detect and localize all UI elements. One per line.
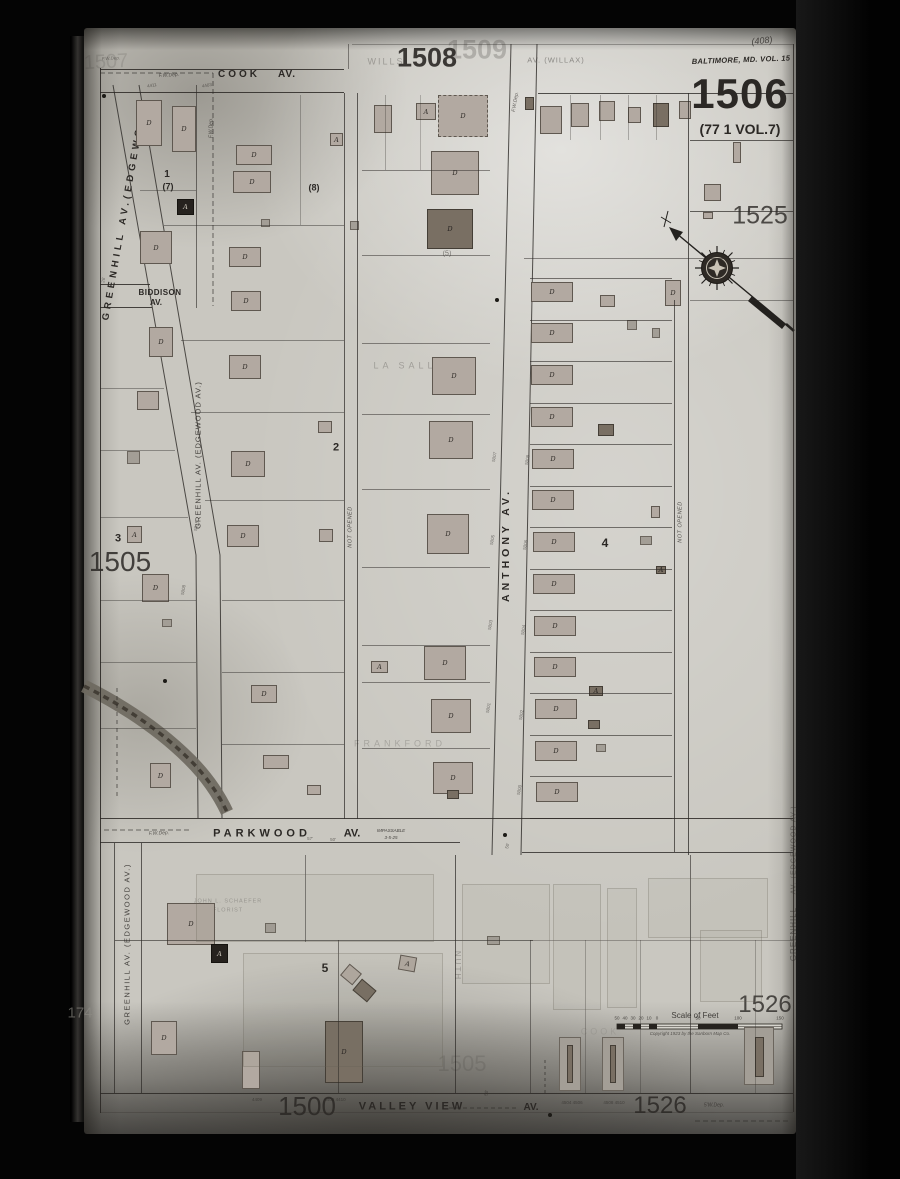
ghost-text: COOK	[581, 1028, 620, 1037]
building-structure	[628, 107, 641, 123]
building-a: A	[371, 661, 388, 673]
street-anthony-av: ANTHONY AV.	[501, 488, 512, 602]
building-d: D	[533, 532, 575, 552]
map-line	[196, 85, 197, 308]
adjacent-sheet-1505: 1505	[89, 548, 151, 576]
map-line	[100, 92, 344, 93]
building-a: A	[656, 566, 666, 574]
block-number-8: (8)	[309, 184, 320, 193]
map-line	[205, 500, 344, 501]
adjacent-sheet-1509: 1509	[447, 37, 507, 64]
survey-note: F.W.Dep.	[512, 92, 520, 113]
scan-background: (408)BALTIMORE, MD. VOL. 151506(77 1 VOL…	[0, 0, 900, 1179]
building-structure	[127, 451, 140, 464]
building-d: D	[229, 247, 261, 267]
house-number: 5001	[486, 703, 492, 714]
map-line	[690, 211, 793, 212]
scale-title: Scale of Feet	[671, 1012, 718, 1020]
scale-tick: 100	[734, 1016, 742, 1021]
block-number-5-paren: (5)	[443, 251, 452, 258]
building-a: A	[330, 133, 343, 146]
building-structure	[755, 1037, 764, 1077]
survey-dot	[495, 298, 499, 302]
house-number: 4411	[147, 83, 157, 89]
building-structure	[318, 421, 332, 433]
survey-note: 5'W.Dep.	[704, 1104, 724, 1109]
ghost-outline	[553, 884, 601, 1010]
building-structure	[447, 790, 459, 799]
street-parkwood-av-suffix: AV.	[344, 829, 361, 840]
scale-tick: 150	[776, 1016, 784, 1021]
building-d: D	[231, 451, 265, 477]
map-line	[100, 818, 793, 819]
building-structure	[704, 184, 721, 201]
scale-tick: 40	[622, 1016, 627, 1021]
map-line	[385, 95, 386, 170]
map-line	[656, 95, 657, 140]
building-d: D	[531, 365, 573, 385]
map-line	[362, 748, 490, 749]
building-structure	[703, 212, 713, 219]
map-line	[530, 403, 672, 404]
house-number: 5000	[517, 785, 523, 796]
survey-note: F.W.Dep.	[159, 73, 180, 79]
building-d: D	[531, 323, 573, 343]
map-line	[530, 444, 672, 445]
map-line	[100, 68, 101, 1113]
building-d: D	[227, 525, 259, 547]
ghost-outline	[196, 874, 434, 942]
street-greenhill-av-mid: GREENHILL AV. (EDGEWOOD AV.)	[194, 381, 202, 529]
map-content-layer: (408)BALTIMORE, MD. VOL. 151506(77 1 VOL…	[0, 0, 900, 1179]
survey-note: F.W.Dep.	[149, 831, 169, 837]
map-line	[362, 170, 490, 171]
map-line	[344, 93, 345, 819]
map-line	[793, 44, 794, 1112]
survey-dot	[102, 94, 106, 98]
building-a: A	[589, 686, 603, 696]
building-d: D	[531, 407, 573, 427]
house-number: 4409	[252, 1098, 262, 1103]
house-number: 5008	[525, 455, 531, 466]
building-structure	[525, 97, 534, 110]
map-line	[164, 225, 344, 226]
building-d: D	[136, 100, 162, 146]
building-d: D	[424, 646, 466, 680]
building-structure	[640, 536, 652, 545]
building-d: D	[665, 280, 681, 306]
building-structure	[374, 105, 392, 133]
map-line	[141, 843, 142, 1093]
building-d: D	[531, 282, 573, 302]
map-line	[530, 776, 672, 777]
house-number: 5015	[194, 521, 200, 532]
building-d: D	[432, 357, 476, 395]
map-line	[100, 728, 196, 729]
building-d: D	[535, 699, 577, 719]
building-d: D	[427, 514, 469, 554]
map-line	[688, 93, 689, 855]
survey-dot	[548, 1113, 552, 1117]
house-number: 5005	[490, 535, 496, 546]
building-structure	[307, 785, 321, 795]
building-structure	[600, 295, 615, 307]
map-line	[362, 567, 490, 568]
scale-tick: 20	[638, 1016, 643, 1021]
building-d: D	[534, 657, 576, 677]
copyright-line: Copyright 1923 by the Sanborn Map Co.	[650, 1032, 731, 1037]
building-structure	[588, 720, 600, 729]
edge-street-greenhill: GREENHILL	[790, 907, 798, 961]
house-number: 5007	[492, 452, 498, 463]
building-a: A	[127, 526, 142, 543]
street-valley-view-av: VALLEY VIEW	[359, 1102, 466, 1113]
scale-tick: 10	[646, 1016, 651, 1021]
building-a: A	[177, 199, 194, 215]
survey-dot	[503, 833, 507, 837]
building-a: A	[416, 103, 436, 120]
block-number-3: 3	[115, 534, 121, 545]
house-number: 5002	[519, 710, 525, 721]
ghost-outline	[607, 888, 637, 1008]
building-d: D	[140, 231, 172, 264]
annotation-impassable: IMPASSABLE	[377, 829, 405, 834]
building-d: D	[233, 171, 271, 193]
scale-tick: 50	[614, 1016, 619, 1021]
building-d: D	[431, 151, 479, 195]
building-d: D	[151, 1021, 177, 1055]
volume-line: BALTIMORE, MD. VOL. 15	[692, 55, 791, 66]
map-line	[530, 569, 672, 570]
map-line	[362, 414, 490, 415]
building-structure	[596, 744, 606, 752]
building-a: A	[211, 944, 228, 963]
building-d: D	[533, 574, 575, 594]
map-line	[140, 190, 196, 191]
map-line	[100, 450, 175, 451]
map-line	[455, 855, 456, 1093]
width-mark: 50'	[505, 843, 511, 850]
map-line	[191, 412, 344, 413]
scale-tick: 0	[656, 1016, 659, 1021]
map-line	[100, 662, 196, 663]
ghost-outline	[243, 953, 443, 1067]
building-d: D	[427, 209, 473, 249]
map-line	[362, 682, 490, 683]
street-wills-ghost: WILLS	[367, 58, 404, 67]
building-d: D	[149, 327, 173, 357]
building-structure	[162, 619, 172, 627]
map-line	[530, 693, 672, 694]
annotation-not-opened-east: NOT OPENED	[678, 501, 684, 542]
building-d: D	[438, 95, 488, 137]
block-number-4: 4	[602, 537, 609, 549]
building-structure	[540, 106, 562, 134]
building-structure	[651, 506, 660, 518]
street-cook-av: COOK	[218, 70, 260, 80]
survey-dot	[163, 679, 167, 683]
map-line	[674, 300, 675, 852]
house-number: 5003	[488, 620, 494, 631]
page-edge-number: 174	[67, 1006, 92, 1021]
map-line	[222, 600, 344, 601]
map-line	[530, 278, 672, 279]
adjacent-sheet-1525: 1525	[732, 204, 788, 229]
building-structure	[137, 391, 159, 410]
map-line	[352, 44, 793, 45]
building-d: D	[532, 490, 574, 510]
map-line	[114, 843, 115, 1093]
map-line	[300, 95, 301, 225]
building-structure	[567, 1045, 573, 1083]
width-mark: 57'	[307, 837, 313, 842]
adjacent-sheet-1526-bottom: 1526	[633, 1094, 686, 1118]
survey-note: F.W.Dep.	[210, 118, 215, 138]
building-d: D	[251, 685, 277, 703]
map-line	[362, 255, 490, 256]
building-d: D	[429, 421, 473, 459]
building-structure	[679, 101, 691, 119]
map-line	[100, 1112, 793, 1113]
map-line	[222, 744, 344, 745]
building-d: D	[536, 782, 578, 802]
ghost-outline	[700, 930, 762, 1002]
building-structure	[571, 103, 589, 127]
house-number: 5008	[181, 585, 187, 596]
map-line	[357, 93, 358, 819]
map-line	[530, 735, 672, 736]
map-line	[524, 258, 793, 259]
map-line	[100, 517, 188, 518]
map-line	[690, 300, 793, 301]
map-line	[530, 320, 672, 321]
map-line	[100, 600, 196, 601]
building-d: D	[535, 741, 577, 761]
street-greenhill-av-bottom: GREENHILL AV. (EDGEWOOD AV.)	[123, 863, 131, 1025]
map-line	[530, 610, 672, 611]
street-biddison-av: BIDDISON	[138, 289, 181, 297]
map-line	[100, 1093, 793, 1094]
map-line	[100, 69, 344, 70]
map-line	[362, 489, 490, 490]
map-line	[530, 486, 672, 487]
building-structure	[599, 101, 615, 121]
building-structure	[610, 1045, 616, 1083]
building-d: D	[150, 763, 171, 788]
map-line	[348, 44, 349, 69]
street-cook-av-suffix: AV.	[278, 70, 296, 80]
map-line	[530, 652, 672, 653]
map-line	[100, 388, 164, 389]
map-line	[690, 140, 793, 141]
house-number: 4408 4410	[324, 1098, 345, 1103]
annotation-impassable-date: 3-5-25	[384, 836, 397, 841]
street-biddison-av-suffix: AV.	[150, 299, 162, 307]
map-line	[100, 307, 152, 308]
block-number-1: 1	[164, 170, 170, 180]
building-structure	[733, 142, 741, 163]
house-number: 4504 4506	[561, 1101, 582, 1106]
survey-note: F.W.Dep.	[102, 56, 120, 61]
map-line	[181, 340, 344, 341]
building-structure	[263, 755, 289, 769]
ghost-sheet-1505: 1505	[438, 1053, 487, 1075]
ghost-outline	[648, 878, 768, 938]
map-line	[600, 95, 601, 140]
map-line	[530, 527, 672, 528]
map-line	[420, 95, 421, 170]
building-d: D	[431, 699, 471, 733]
house-number: 4508 4510	[603, 1101, 624, 1106]
sub-number: (77 1 VOL.7)	[700, 122, 781, 136]
map-line	[222, 672, 344, 673]
street-willax: AV. (WILLAX)	[527, 56, 584, 64]
building-structure	[319, 529, 333, 542]
building-d: D	[229, 355, 261, 379]
building-structure	[627, 320, 637, 330]
map-line	[100, 284, 150, 285]
map-line	[530, 361, 672, 362]
building-d: D	[142, 574, 169, 602]
building-structure	[598, 424, 614, 436]
map-line	[100, 842, 460, 843]
building-d: D	[236, 145, 272, 165]
house-number: 5006	[523, 540, 529, 551]
house-number: 4403	[202, 83, 213, 89]
scale-tick: 30	[630, 1016, 635, 1021]
block-number-2: 2	[333, 443, 339, 454]
map-line	[628, 95, 629, 140]
house-number: 5004	[521, 625, 527, 636]
building-d: D	[532, 449, 574, 469]
sheet-number: 1506	[691, 73, 788, 115]
ghost-outline	[462, 884, 550, 984]
map-line	[362, 343, 490, 344]
map-line	[538, 93, 793, 94]
map-line	[362, 645, 490, 646]
building-d: D	[534, 616, 576, 636]
building-d: D	[172, 106, 196, 152]
annotation-not-opened-west: NOT OPENED	[348, 506, 354, 547]
building-d: D	[231, 291, 261, 311]
map-line	[522, 852, 793, 853]
building-structure	[652, 328, 660, 338]
street-parkwood-av: PARKWOOD	[213, 829, 311, 840]
map-line	[570, 95, 571, 140]
